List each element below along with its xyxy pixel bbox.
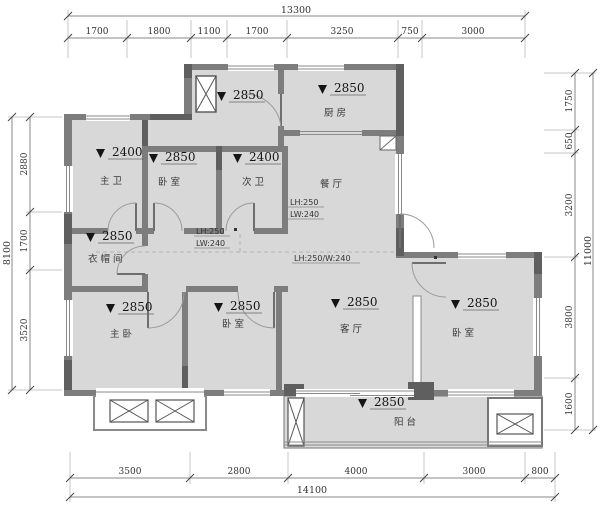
room-name-bedroom-top: 卧室 [158, 176, 183, 188]
room-name-bedroom-mid: 卧室 [222, 318, 247, 330]
dim-right-seg-0: 1750 [565, 89, 575, 112]
svg-text:2850: 2850 [230, 299, 261, 313]
dim-bottom-seg-1: 2800 [228, 467, 251, 477]
room-name-master-bedroom: 主卧 [110, 328, 135, 340]
svg-text:LH:250: LH:250 [196, 227, 224, 236]
dim-bottom-overall: 14100 [297, 485, 327, 496]
dim-left-seg-2: 3520 [20, 318, 30, 341]
window-entry-top [228, 63, 274, 71]
dim-bottom-seg-4: 800 [531, 467, 548, 477]
svg-text:2850: 2850 [102, 229, 133, 243]
dimensions-top: 13300 1700 1800 1100 1700 3250 750 3000 [64, 5, 529, 58]
svg-text:2400: 2400 [112, 145, 143, 159]
dim-top-overall: 13300 [281, 5, 311, 16]
dimensions-bottom: 3500 2800 4000 3000 800 14100 [66, 452, 559, 502]
dimensions-right: 1750 650 3200 3800 1600 11000 [544, 69, 597, 434]
dim-bottom-seg-3: 3000 [463, 467, 486, 477]
svg-text:2850: 2850 [467, 296, 498, 310]
ac-unit-balcony-left [288, 398, 304, 446]
svg-text:LW:240: LW:240 [196, 239, 225, 248]
door-entry [400, 214, 434, 248]
room-name-kitchen: 厨房 [324, 107, 349, 119]
dim-top-seg-3: 1700 [246, 27, 269, 37]
dim-top-seg-6: 3000 [462, 27, 485, 37]
svg-text:2850: 2850 [334, 81, 365, 95]
dim-top-seg-1: 1800 [148, 27, 171, 37]
dim-left-seg-1: 1700 [20, 229, 30, 252]
svg-text:2850: 2850 [165, 150, 196, 164]
dim-right-overall: 11000 [583, 236, 594, 266]
window-bedroommid-bottom [224, 389, 270, 397]
floor-plan-canvas: 13300 1700 1800 1100 1700 3250 750 3000 … [0, 0, 600, 510]
room-name-dining: 餐厅 [320, 178, 345, 190]
dim-right-seg-4: 1600 [565, 392, 575, 415]
dimensions-left: 2880 1700 3520 8100 [2, 113, 62, 394]
room-name-balcony: 阳台 [394, 416, 419, 428]
kitchen-flue [380, 136, 396, 150]
room-name-second-bath: 次卫 [242, 176, 267, 188]
window-bedroomright-top [458, 251, 506, 259]
dim-top-seg-4: 3250 [331, 27, 354, 37]
room-name-cloakroom: 衣帽间 [88, 253, 126, 265]
dim-bottom-seg-2: 4000 [345, 467, 368, 477]
ac-platform-bottom-right [488, 398, 542, 446]
bay-window-master [94, 388, 206, 430]
svg-text:LH:250: LH:250 [290, 198, 318, 207]
window-bedroomright-bottom [448, 389, 514, 397]
dim-right-seg-3: 3800 [565, 305, 575, 328]
window-topleft [86, 113, 130, 121]
svg-text:2850: 2850 [347, 295, 378, 309]
svg-text:LW:240: LW:240 [290, 210, 319, 219]
dim-top-seg-2: 1100 [198, 27, 221, 37]
elevator-shaft [196, 76, 216, 112]
svg-text:2850: 2850 [233, 88, 264, 102]
window-dining-right [395, 154, 405, 214]
svg-text:2400: 2400 [249, 150, 280, 164]
svg-text:2850: 2850 [374, 395, 405, 409]
room-name-master-bath: 主卫 [100, 175, 125, 187]
window-kitchen-top [298, 63, 344, 71]
dim-left-overall: 8100 [2, 241, 13, 265]
room-name-bedroom-right: 卧室 [452, 327, 477, 339]
dim-right-seg-2: 3200 [565, 193, 575, 216]
dim-right-seg-1: 650 [565, 132, 575, 149]
floor-plan-drawing: 13300 1700 1800 1100 1700 3250 750 3000 … [0, 0, 600, 510]
dim-bottom-seg-0: 3500 [119, 467, 142, 477]
dim-top-seg-5: 750 [401, 27, 418, 37]
window-left-bath [63, 166, 73, 212]
window-right-wall [533, 298, 543, 356]
dim-top-seg-0: 1700 [86, 27, 109, 37]
svg-text:2850: 2850 [122, 300, 153, 314]
room-name-living: 客厅 [340, 323, 365, 335]
svg-text:LH:250/W:240: LH:250/W:240 [294, 254, 351, 263]
dim-left-seg-0: 2880 [20, 152, 30, 175]
window-left-master [63, 300, 73, 356]
